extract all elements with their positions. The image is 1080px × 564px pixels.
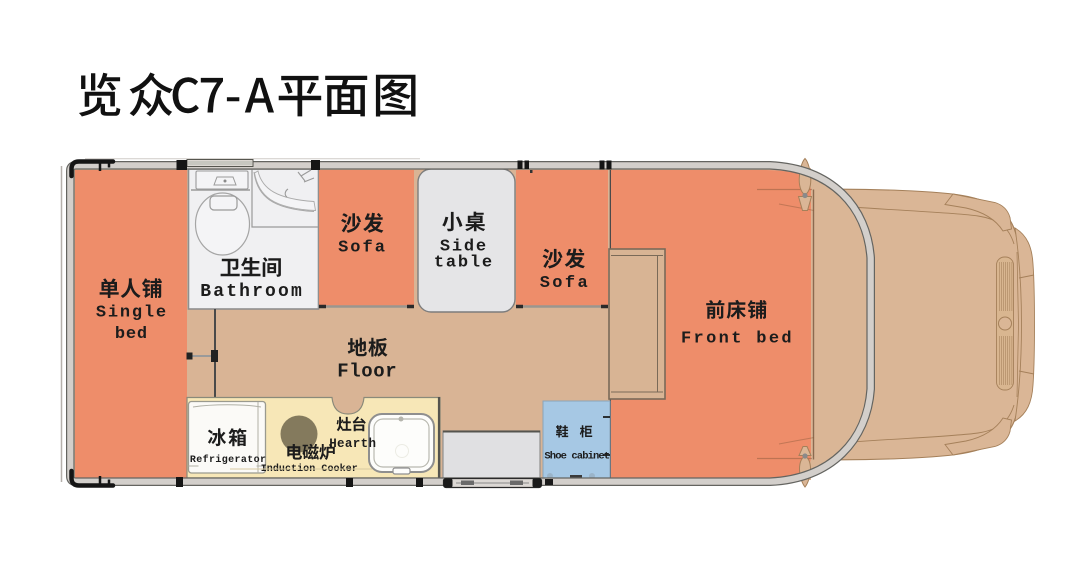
svg-text:Sofa: Sofa [338, 239, 387, 258]
svg-text:Sofa: Sofa [540, 274, 590, 293]
svg-text:bed: bed [115, 325, 148, 344]
svg-text:Refrigerator: Refrigerator [190, 454, 266, 466]
svg-text:Floor: Floor [337, 360, 397, 382]
svg-text:Bathroom: Bathroom [200, 282, 304, 302]
svg-text:table: table [434, 254, 494, 273]
svg-text:Shoe cabinet: Shoe cabinet [544, 451, 609, 463]
svg-text:Single: Single [96, 304, 168, 323]
svg-text:Hearth: Hearth [329, 437, 376, 451]
svg-text:Front bed: Front bed [681, 330, 794, 349]
